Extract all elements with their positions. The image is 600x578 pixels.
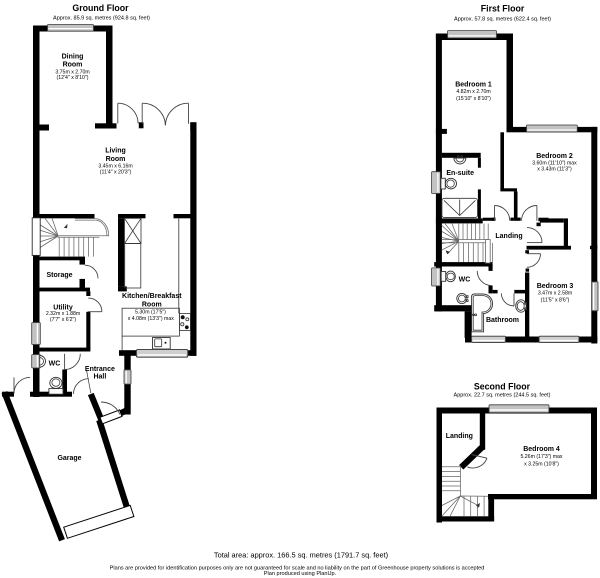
svg-text:Hall: Hall <box>93 374 106 381</box>
svg-text:x 3.25m (10'8"): x 3.25m (10'8") <box>524 461 559 467</box>
svg-text:5.26m (17'3") max: 5.26m (17'3") max <box>520 454 562 460</box>
svg-text:Ground Floor: Ground Floor <box>72 3 129 13</box>
svg-text:(12'4" x 8'10"): (12'4" x 8'10") <box>57 75 89 81</box>
svg-text:First Floor: First Floor <box>481 4 525 14</box>
svg-text:Storage: Storage <box>46 272 72 279</box>
svg-text:Approx. 57.8 sq. metres (622.: Approx. 57.8 sq. metres (622.4 sq. feet) <box>454 17 551 23</box>
svg-text:Landing: Landing <box>446 433 473 440</box>
svg-text:Room: Room <box>63 62 83 69</box>
svg-text:Kitchen/Breakfast: Kitchen/Breakfast <box>122 293 182 300</box>
svg-text:WC: WC <box>49 360 61 367</box>
svg-text:Bedroom 3: Bedroom 3 <box>537 283 574 290</box>
svg-text:Second Floor: Second Floor <box>474 382 531 392</box>
svg-text:Room: Room <box>106 156 126 163</box>
svg-text:Bedroom 4: Bedroom 4 <box>523 446 560 453</box>
svg-text:(15'10" x 8'10"): (15'10" x 8'10") <box>456 96 491 102</box>
svg-text:5.30m (17'5"): 5.30m (17'5") <box>135 310 166 316</box>
svg-text:Bathroom: Bathroom <box>486 317 519 324</box>
svg-text:x 4.08m (13'3") max: x 4.08m (13'3") max <box>128 316 174 322</box>
svg-text:Garage: Garage <box>57 455 81 462</box>
svg-text:(11'5" x 8'6"): (11'5" x 8'6") <box>541 298 570 304</box>
svg-text:Landing: Landing <box>495 233 522 240</box>
svg-text:Dining: Dining <box>62 54 84 61</box>
svg-text:Bedroom 1: Bedroom 1 <box>455 81 492 88</box>
svg-text:Total area: approx. 166.5 sq.: Total area: approx. 166.5 sq. metres (17… <box>214 551 388 560</box>
svg-text:Approx. 22.7 sq. metres (244.: Approx. 22.7 sq. metres (244.5 sq. feet) <box>454 393 551 399</box>
svg-text:WC: WC <box>459 277 471 284</box>
svg-text:Room: Room <box>142 302 162 309</box>
svg-text:4.82m x 2.70m: 4.82m x 2.70m <box>456 89 490 95</box>
svg-text:(11'4" x 20'3"): (11'4" x 20'3") <box>100 170 132 176</box>
svg-text:Entrance: Entrance <box>85 366 115 373</box>
svg-text:Approx. 85.9 sq. metres (924.: Approx. 85.9 sq. metres (924.8 sq. feet) <box>53 16 150 22</box>
svg-text:(7'7" x 6'2"): (7'7" x 6'2") <box>50 317 76 323</box>
svg-text:3.47m x 2.58m: 3.47m x 2.58m <box>538 291 572 297</box>
svg-text:Living: Living <box>105 148 126 155</box>
svg-text:En-suite: En-suite <box>446 170 474 177</box>
svg-text:x 3.43m (11'3"): x 3.43m (11'3") <box>537 166 572 172</box>
svg-text:Plan produced using PlanUp.: Plan produced using PlanUp. <box>264 571 337 577</box>
svg-text:Bedroom 2: Bedroom 2 <box>536 153 573 160</box>
